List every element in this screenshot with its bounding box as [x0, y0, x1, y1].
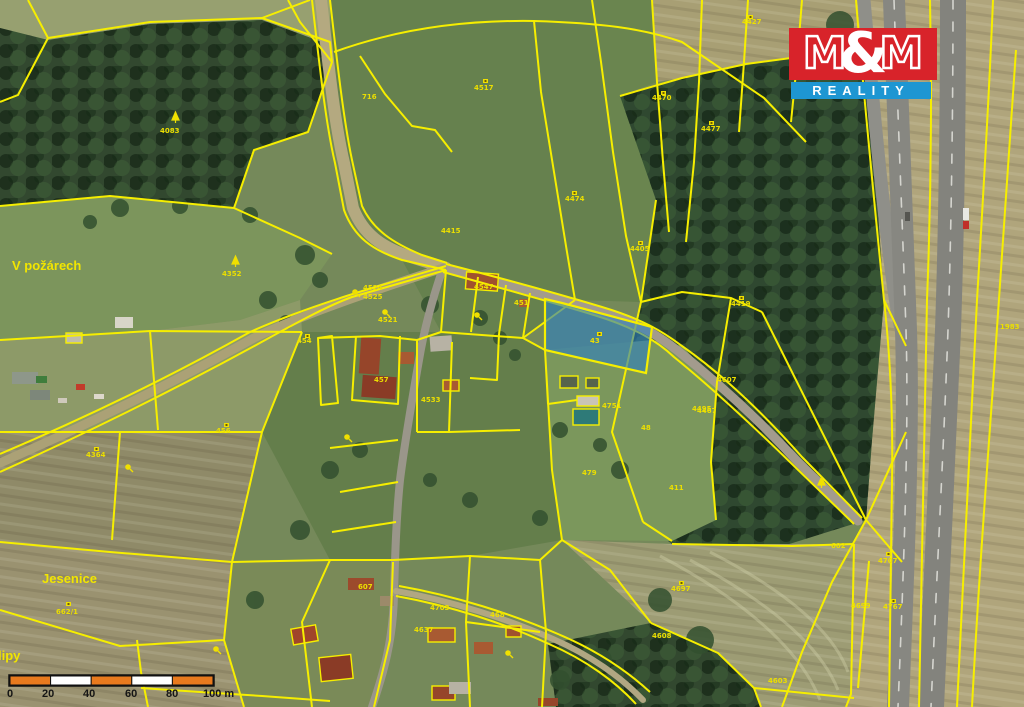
svg-text:4751: 4751	[602, 402, 622, 410]
svg-text:4707: 4707	[878, 557, 898, 565]
svg-text:451: 451	[514, 299, 529, 307]
svg-text:4697: 4697	[671, 585, 691, 593]
svg-text:0: 0	[7, 688, 13, 700]
svg-text:4703: 4703	[430, 604, 450, 612]
svg-text:662/1: 662/1	[56, 608, 78, 616]
svg-text:716: 716	[362, 93, 377, 101]
svg-text:1983: 1983	[1000, 323, 1020, 331]
logo-ampersand: &	[839, 26, 888, 82]
svg-text:4607: 4607	[717, 376, 737, 384]
svg-text:4603: 4603	[768, 677, 788, 685]
svg-text:4637: 4637	[414, 626, 434, 634]
svg-text:4533: 4533	[421, 396, 441, 404]
svg-text:456: 456	[216, 427, 231, 435]
svg-text:4608: 4608	[652, 632, 672, 640]
svg-text:40: 40	[83, 688, 95, 700]
farm-shed	[12, 372, 38, 384]
svg-text:4419: 4419	[731, 300, 751, 308]
svg-text:468: 468	[490, 611, 505, 619]
farm-vehicle	[76, 384, 85, 390]
svg-text:4477: 4477	[701, 125, 721, 133]
map-canvas: 4083435271645174474440544704477442744194…	[0, 0, 1024, 707]
svg-text:411: 411	[669, 484, 684, 492]
svg-text:4699: 4699	[851, 602, 871, 610]
mm-reality-logo: M & M REALITY	[789, 28, 937, 99]
svg-text:4767: 4767	[883, 603, 903, 611]
svg-text:4521: 4521	[378, 316, 398, 324]
svg-text:20: 20	[42, 688, 54, 700]
svg-text:4415: 4415	[441, 227, 461, 235]
svg-text:4474: 4474	[565, 195, 585, 203]
svg-text:457: 457	[374, 376, 389, 384]
svg-text:4083: 4083	[160, 127, 180, 135]
truck-on-highway	[963, 208, 969, 220]
svg-text:4495: 4495	[692, 405, 712, 413]
svg-text:4405: 4405	[630, 245, 650, 253]
svg-text:4524: 4524	[363, 284, 383, 292]
svg-text:4364: 4364	[86, 451, 106, 459]
svg-text:4547: 4547	[474, 283, 494, 291]
svg-text:V požárech: V požárech	[12, 258, 81, 273]
svg-text:607: 607	[358, 583, 373, 591]
svg-text:4525: 4525	[363, 293, 383, 301]
svg-text:lipy: lipy	[0, 648, 21, 663]
svg-text:60: 60	[125, 688, 137, 700]
svg-text:43: 43	[590, 337, 600, 345]
svg-text:4352: 4352	[222, 270, 242, 278]
cadastral-map-image[interactable]: 4083435271645174474440544704477442744194…	[0, 0, 1024, 707]
svg-text:Jesenice: Jesenice	[42, 571, 97, 586]
svg-text:479: 479	[582, 469, 597, 477]
svg-text:454: 454	[297, 337, 312, 345]
svg-text:4517: 4517	[474, 84, 494, 92]
svg-text:80: 80	[166, 688, 178, 700]
svg-text:602: 602	[831, 542, 846, 550]
svg-text:4470: 4470	[652, 94, 672, 102]
svg-text:4427: 4427	[742, 18, 762, 26]
svg-text:100 m: 100 m	[203, 688, 234, 700]
logo-mm-box: M & M	[789, 28, 937, 80]
swimming-pool	[573, 409, 599, 425]
svg-text:48: 48	[641, 424, 651, 432]
